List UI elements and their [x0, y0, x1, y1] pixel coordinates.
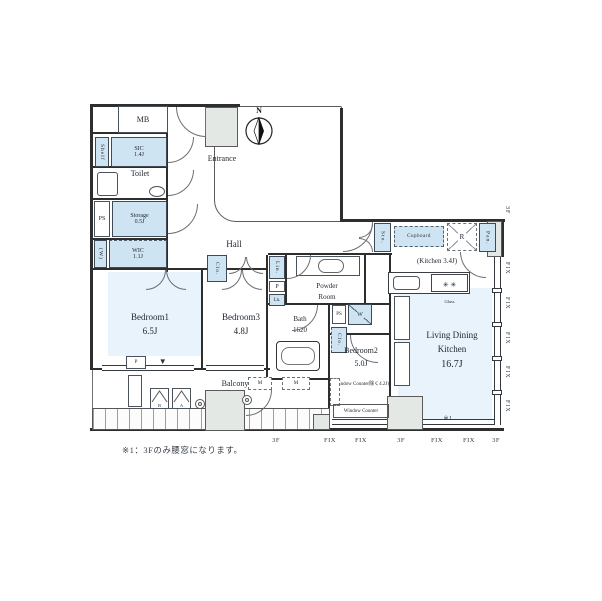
pipe-shaft: P — [269, 281, 285, 292]
fridge-label: R — [458, 233, 467, 241]
compass-needle-light — [254, 117, 259, 145]
fix-marker: FIX — [463, 437, 475, 444]
window-mullion — [492, 356, 502, 361]
fix-marker: FIX — [431, 437, 443, 444]
pipe-space: PS — [94, 201, 110, 237]
door-arc — [168, 137, 194, 163]
ps-bath-label: PS — [336, 312, 342, 317]
bathtub-icon — [276, 341, 320, 371]
ps-entry-label: PS — [99, 216, 106, 222]
lin-label: Lin. — [274, 261, 280, 274]
floor-marker: 3F — [397, 437, 405, 444]
drain-icon — [195, 399, 205, 409]
floor-marker: 3F — [272, 437, 280, 444]
pipe-space-bath: PS — [332, 305, 346, 324]
toilet-label: Toilet — [131, 168, 150, 181]
bedroom3-label: Bedroom34.8J — [222, 310, 260, 339]
sic-shelf: Shelf — [95, 137, 109, 167]
stove-icon: ✳ ✳ Glass — [431, 274, 468, 292]
wic-size: 1.1J — [133, 254, 143, 260]
window-mullion — [492, 322, 502, 327]
window-counter: Window Counter — [333, 404, 389, 418]
toilet-bowl-icon — [149, 186, 165, 197]
window-counter-side — [330, 378, 340, 406]
ac-unit-b: B — [150, 388, 169, 409]
washer-space: W — [348, 304, 372, 325]
ac-b-label: B — [158, 403, 161, 408]
cupboard-label: Cupboard — [407, 234, 431, 239]
floor-plan: MB N Shelf SIC1.4J Entrance Toilet PS St… — [0, 0, 602, 601]
clo-bedroom2-label: Clo. — [336, 333, 342, 346]
window-mullion — [492, 288, 502, 293]
fix-marker: FIX — [504, 297, 510, 310]
ac-unit-a: A — [172, 388, 191, 409]
bedroom1-window — [102, 365, 194, 371]
storage-room: Storage0.5J — [112, 201, 167, 237]
entrance-label: Entrance — [208, 153, 236, 166]
wall-segment — [92, 198, 168, 200]
balcony-p-box: P — [126, 356, 146, 369]
p-balcony-label: P — [135, 360, 138, 365]
vanity-sink-icon — [318, 259, 344, 273]
sto-label: Sto. — [380, 231, 386, 244]
ref-marker: ※1 — [443, 415, 452, 422]
hall-label: Hall — [226, 237, 242, 251]
washer-label: W — [356, 312, 364, 318]
sliding-panel — [394, 342, 410, 386]
pantry-label: Pan. — [485, 231, 491, 245]
linen-closet: Lin. — [269, 256, 285, 279]
bedroom2-note: (Window Counter除く4.2J) — [333, 381, 389, 389]
window-counter-label: Window Counter — [344, 409, 378, 414]
kitchen-storage: Sto. — [374, 223, 391, 252]
bedroom1-label: Bedroom16.5J — [131, 310, 169, 339]
linen-lower: Ln. — [269, 294, 285, 306]
door-arc — [242, 270, 262, 290]
powder-room-label: PowderRoom — [316, 281, 337, 303]
stove-glass-label: Glass — [445, 299, 455, 304]
sic-size: 1.4J — [134, 152, 144, 158]
bedroom2-label: Bedroom25.0J — [344, 345, 378, 371]
compass-n-label: N — [256, 106, 262, 115]
meter-box-1: M — [248, 377, 272, 390]
storage-size: 0.5J — [135, 219, 145, 225]
section-marker: ▼ — [159, 357, 167, 366]
meter-box-2: M — [282, 377, 310, 390]
cupboard: Cupboard — [394, 226, 444, 247]
wic-side: (W) — [94, 240, 107, 268]
floor-marker: 3F — [492, 437, 500, 444]
wall-segment — [364, 253, 366, 305]
fix-marker: FIX — [355, 437, 367, 444]
door-leaf — [205, 107, 206, 137]
meter-label: M — [258, 381, 262, 386]
ldk-fix-window — [494, 255, 501, 425]
ac-triangle-icon — [173, 390, 190, 403]
door-arc — [168, 204, 198, 234]
column — [313, 414, 330, 430]
fix-marker: FIX — [504, 262, 510, 275]
shelf-label: Shelf — [99, 144, 105, 161]
column — [387, 396, 423, 430]
window-mullion — [492, 390, 502, 395]
refrigerator-space: R — [447, 223, 477, 251]
wic-room: WIC1.1J — [109, 240, 167, 268]
sic-room: SIC1.4J — [111, 137, 167, 167]
wall-segment — [340, 108, 343, 222]
wall-segment — [266, 255, 268, 380]
ln-label: Ln. — [274, 298, 281, 303]
door-arc — [292, 305, 318, 331]
footnote: ※1：3Fのみ腰窓になります。 — [122, 444, 243, 456]
sliding-panel — [394, 296, 410, 340]
compass-needle-dark — [259, 117, 264, 145]
fix-marker: FIX — [504, 366, 510, 379]
p-shaft-label: P — [275, 284, 278, 290]
column — [205, 390, 245, 431]
balcony-label: Balcony — [222, 378, 249, 391]
fix-marker: FIX — [504, 400, 510, 413]
stove-burners-icon: ✳ ✳ — [443, 281, 456, 289]
entrance-door-arc — [176, 107, 206, 137]
toilet-booth — [97, 172, 118, 196]
fix-marker: FIX — [504, 332, 510, 345]
clo-hall-label: Clo. — [214, 262, 220, 275]
bedroom3-window — [206, 365, 264, 371]
ac-triangle-icon — [151, 390, 168, 403]
meter-box: MB — [118, 106, 168, 133]
kitchen-label: (Kitchen 3.4J) — [417, 256, 457, 267]
ac-a-label: A — [180, 403, 183, 408]
pantry: Pan. — [479, 223, 496, 252]
door-arc — [222, 270, 242, 290]
wall-segment — [201, 268, 203, 370]
kitchen-sink-icon — [393, 276, 420, 290]
floor-marker: 3F — [504, 206, 510, 214]
mb-label: MB — [137, 115, 149, 124]
compass-icon: N — [241, 104, 277, 148]
wall-segment — [90, 104, 93, 370]
fix-marker: FIX — [324, 437, 336, 444]
meter-label: M — [294, 381, 298, 386]
column — [205, 107, 238, 147]
door-arc — [168, 170, 194, 196]
bedroom2-window — [332, 419, 388, 425]
wic-side-label: (W) — [98, 248, 104, 260]
ldk-label: Living Dining Kitchen 16.7J — [426, 328, 477, 373]
balcony-divider — [128, 375, 142, 407]
